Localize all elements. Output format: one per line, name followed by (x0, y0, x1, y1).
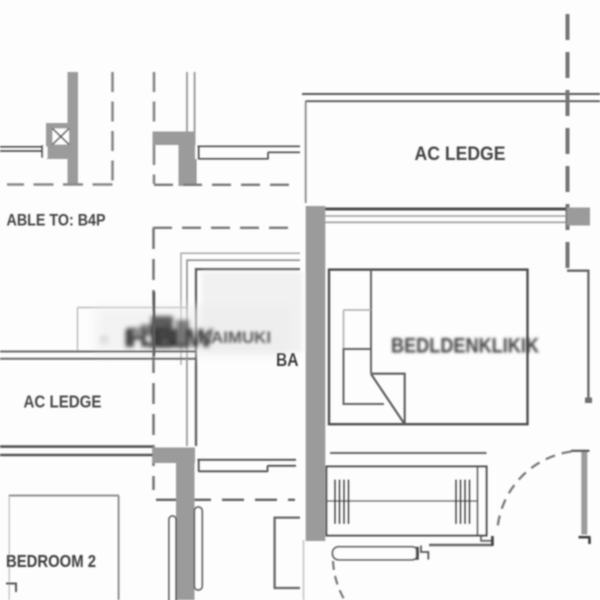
svg-text:KAIMUKI: KAIMUKI (199, 328, 271, 347)
svg-text:BA: BA (276, 349, 299, 370)
svg-text:BEDROOM 2: BEDROOM 2 (6, 551, 96, 571)
svg-text:AC LEDGE: AC LEDGE (24, 392, 102, 412)
svg-text:BEDLDENKLIKIK: BEDLDENKLIKIK (391, 335, 539, 358)
svg-text:AC LEDGE: AC LEDGE (415, 143, 506, 165)
svg-text:ABLE TO: B4P: ABLE TO: B4P (7, 211, 106, 230)
svg-text:n: n (100, 331, 108, 348)
